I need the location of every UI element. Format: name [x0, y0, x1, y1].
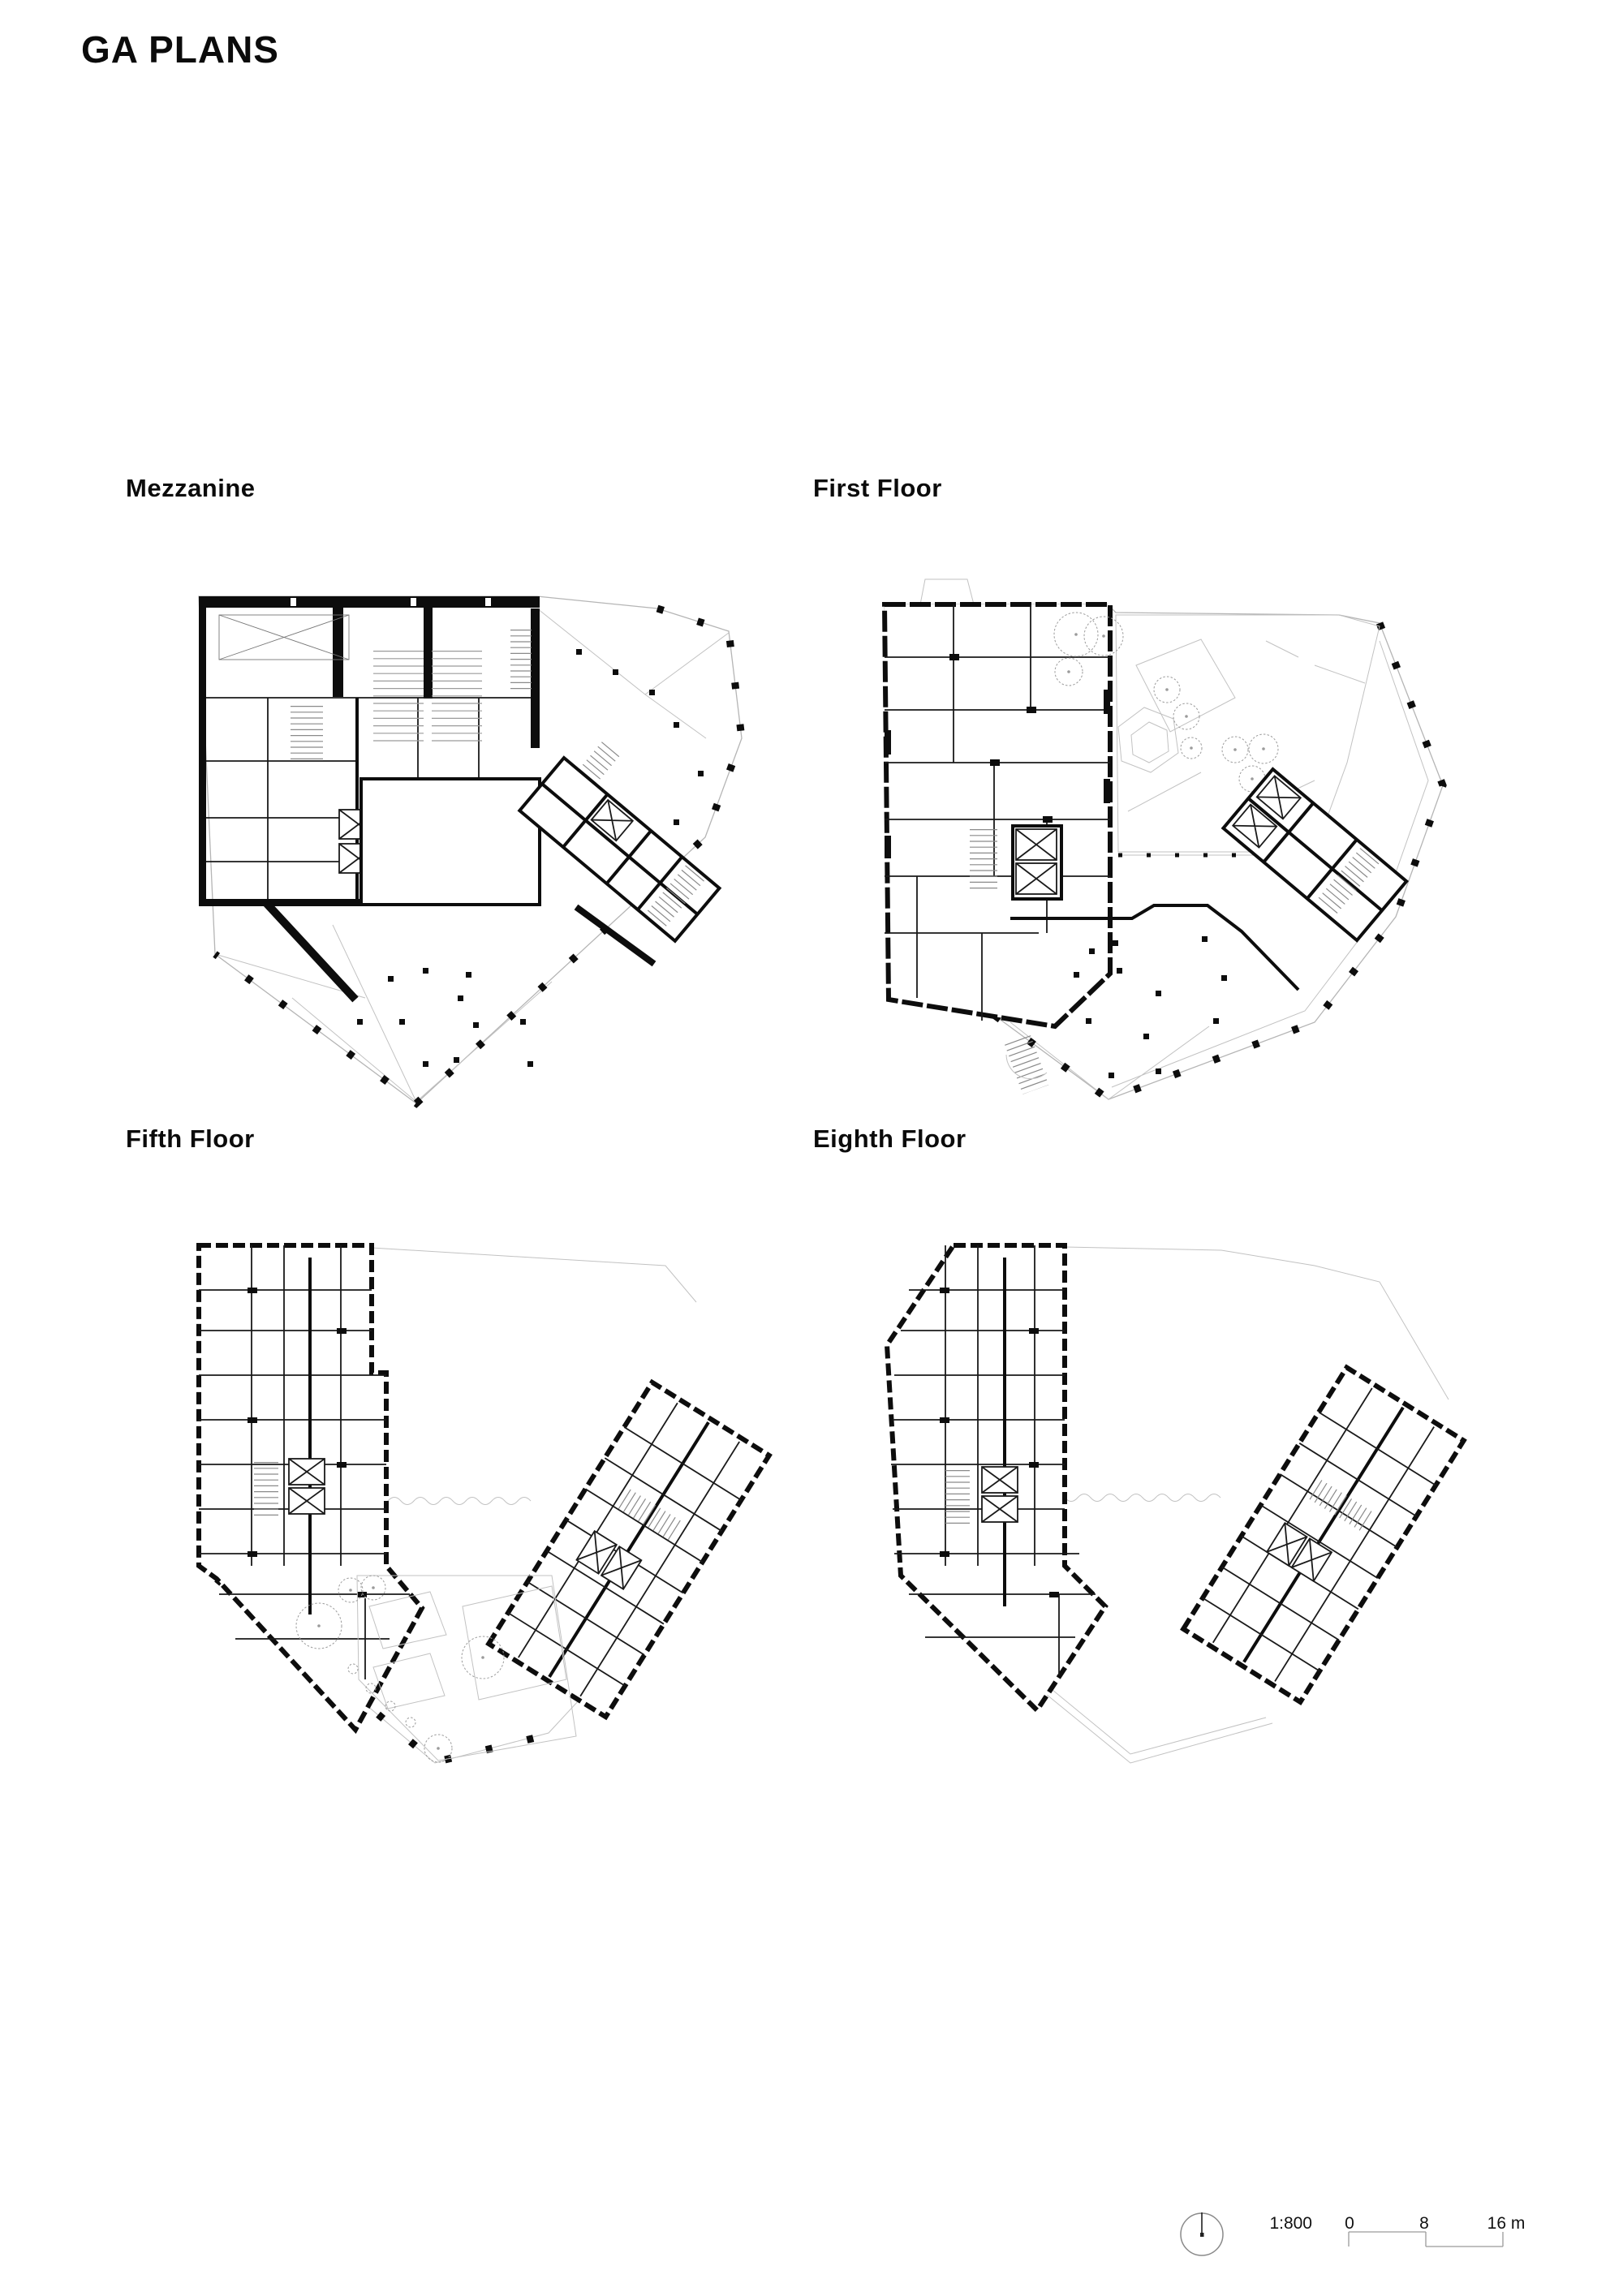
central-hall	[361, 779, 540, 905]
entrance-wall	[266, 903, 355, 1000]
plan-label-eighth-floor: Eighth Floor	[813, 1124, 966, 1154]
sheet-title: GA PLANS	[81, 28, 279, 71]
plan-label-fifth-floor: Fifth Floor	[126, 1124, 255, 1154]
south-east-wing	[519, 758, 719, 941]
scale-end: 16 m	[1487, 2214, 1526, 2233]
roof-bump-outline	[920, 579, 974, 604]
west-apartment-block	[199, 1245, 422, 1730]
scale-zero: 0	[1345, 2214, 1354, 2233]
west-apartment-block	[885, 604, 1110, 1026]
sheet: { "page": { "title": "GA PLANS" }, "plan…	[0, 0, 1623, 2296]
east-apartment-wing	[1183, 1368, 1464, 1702]
north-arrow-icon	[1181, 2212, 1223, 2255]
balcony-scallop	[1065, 1494, 1220, 1502]
balcony-scallop	[375, 1498, 531, 1505]
west-apartment-block	[887, 1245, 1105, 1710]
eighth-floor-plan-drawing	[860, 1225, 1461, 1777]
first-floor-plan-drawing	[860, 568, 1461, 1120]
scale-mid: 8	[1419, 2214, 1429, 2233]
stair-south	[1018, 1040, 1035, 1090]
mezzanine-plan-drawing	[170, 576, 771, 1128]
scale-ratio: 1:800	[1269, 2214, 1312, 2233]
scale-bar-line	[1349, 2232, 1503, 2247]
plan-label-first-floor: First Floor	[813, 474, 942, 503]
pavilion-hexagon	[1118, 707, 1178, 772]
plan-label-mezzanine: Mezzanine	[126, 474, 256, 503]
east-apartment-wing	[489, 1382, 769, 1717]
scale-bar-group: 1:800 0 8 16 m	[1169, 2199, 1558, 2280]
fifth-floor-plan-drawing	[170, 1225, 771, 1777]
